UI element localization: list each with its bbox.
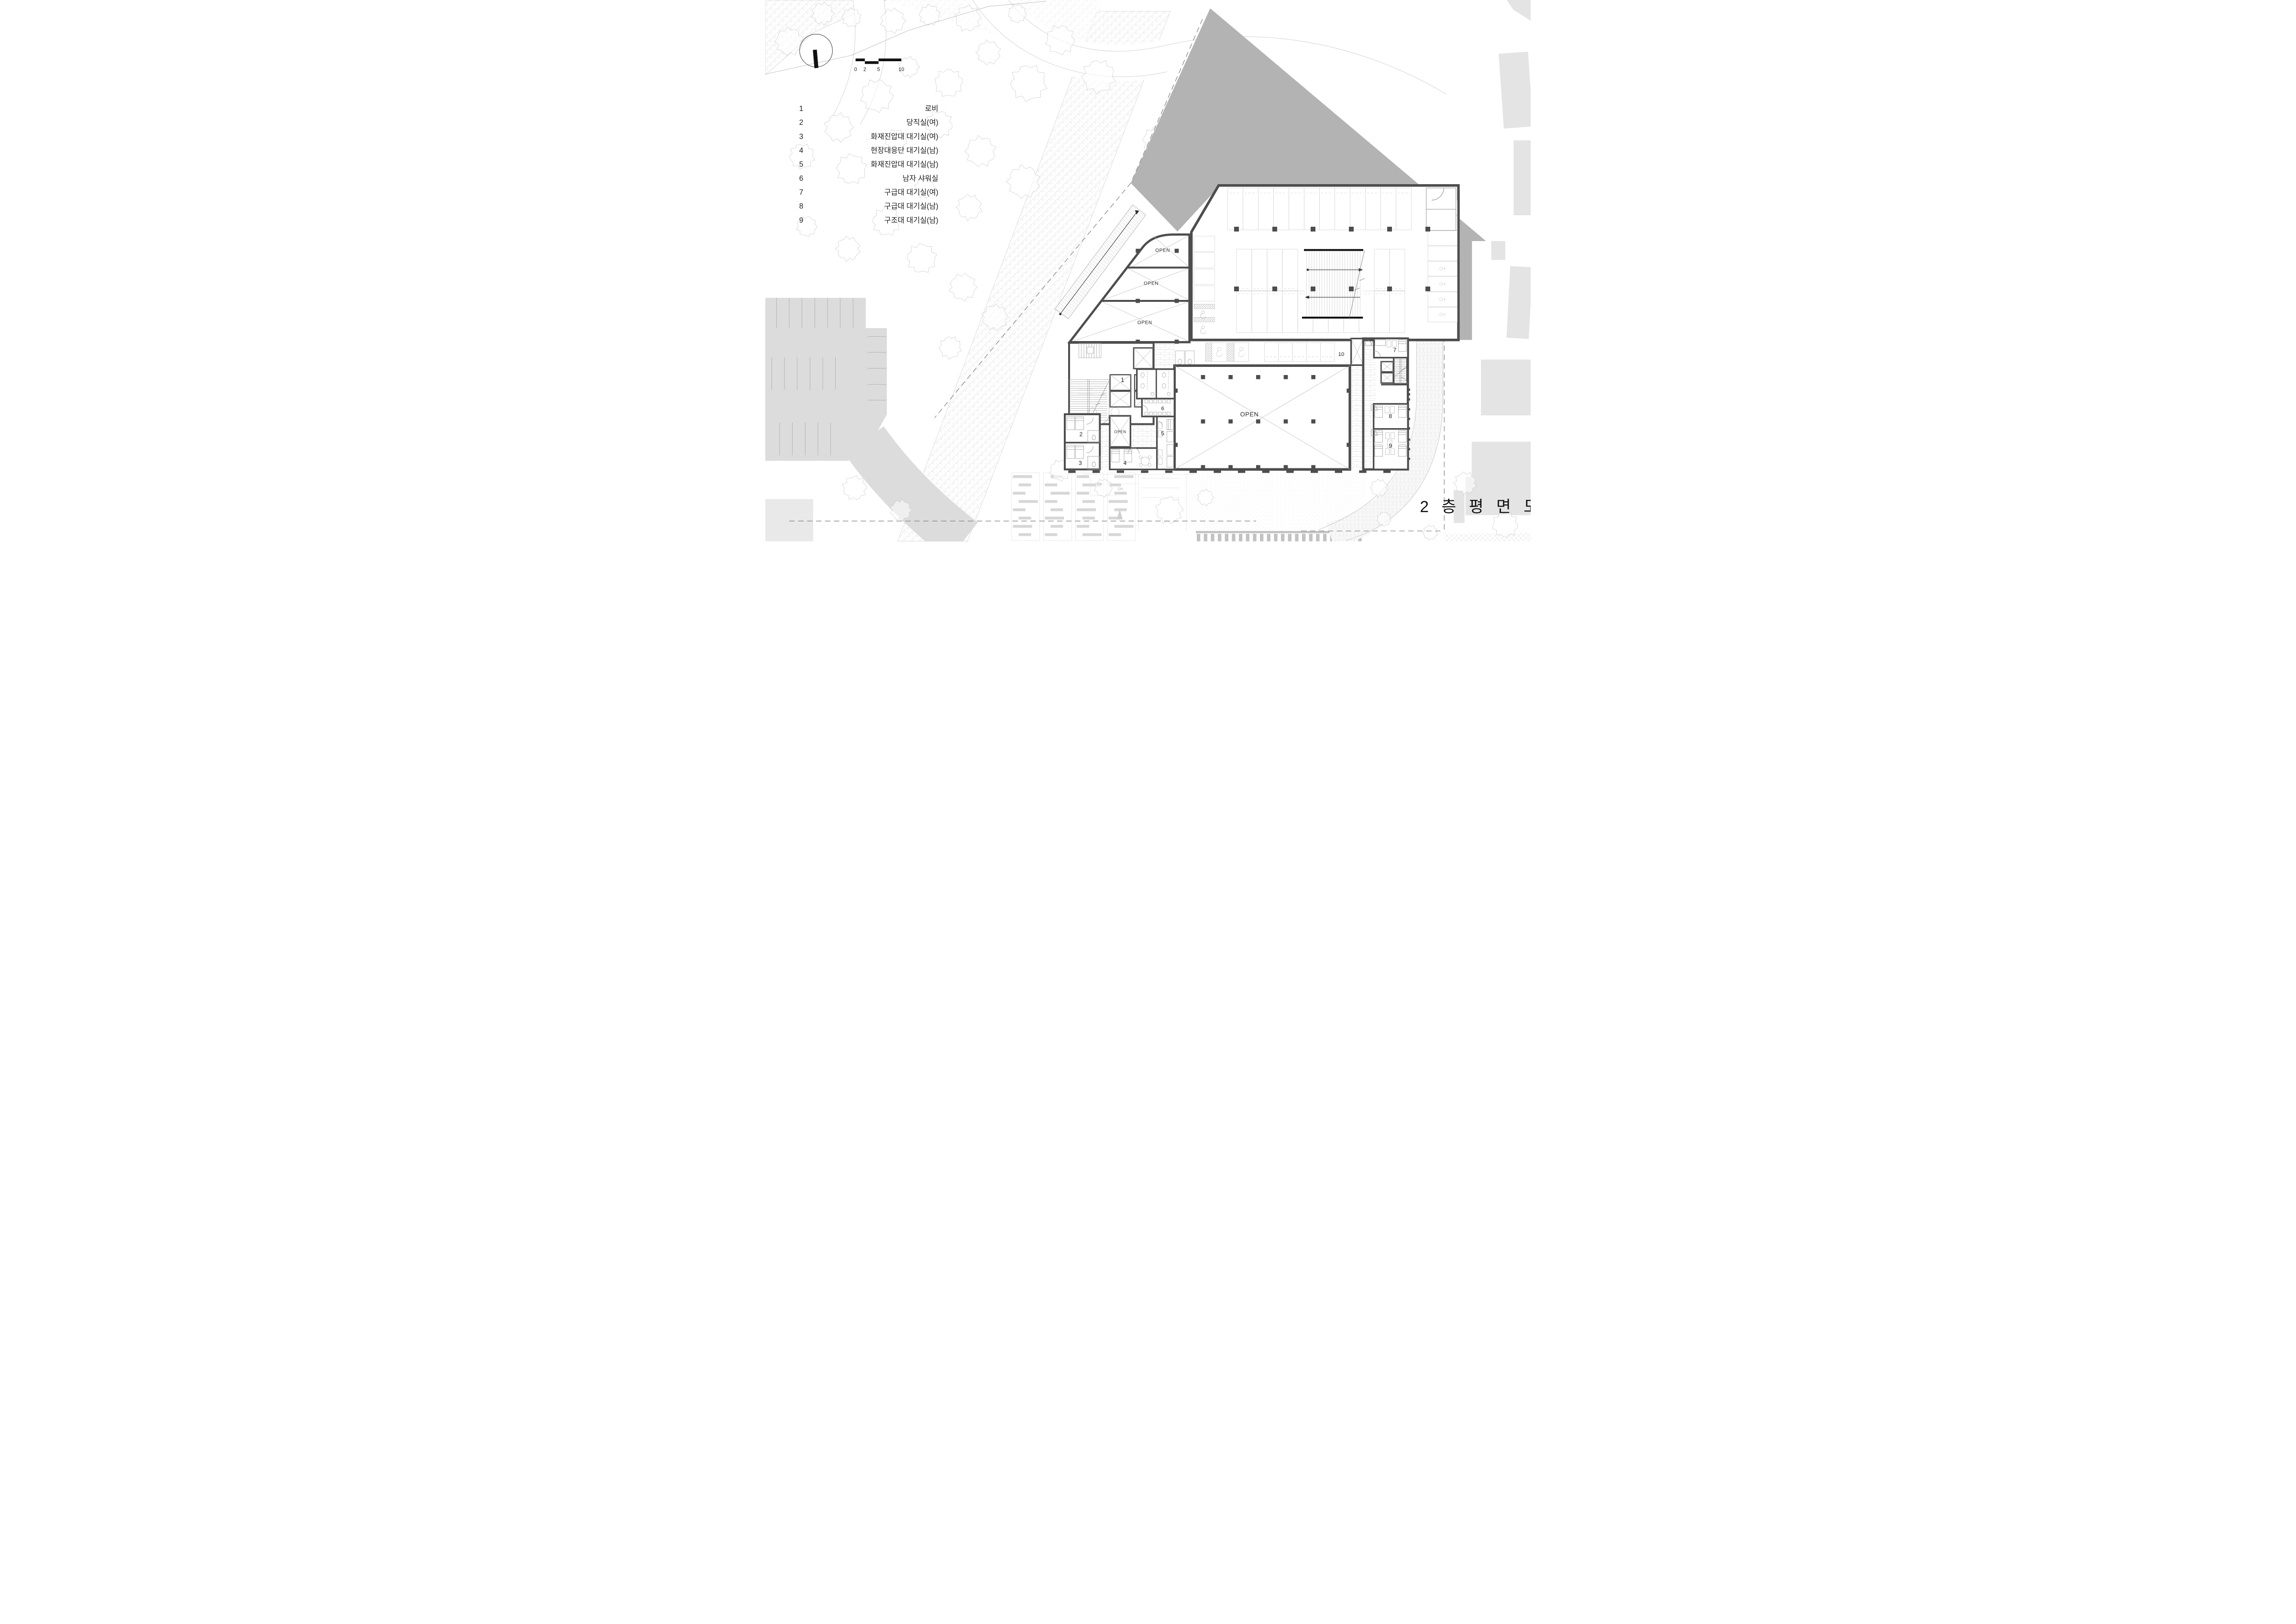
planting-band: [1045, 517, 1064, 519]
big-open-hall: [1173, 365, 1351, 469]
step-tooth: [1274, 534, 1277, 541]
room-number-label: 8: [1389, 413, 1392, 420]
footing-dash: [1141, 470, 1148, 473]
legend-number: 1: [799, 105, 804, 113]
down-stair-label: DN: [1097, 482, 1102, 486]
legend-number: 4: [799, 146, 804, 155]
open-void-label: OPEN: [1155, 248, 1170, 254]
room-number-label: 1: [1121, 376, 1124, 383]
tree-symbol: [949, 273, 977, 301]
room-number-label: 6: [1161, 406, 1164, 411]
planting-strip: [1107, 473, 1136, 541]
tree-symbol: [907, 243, 936, 273]
planting-band: [1013, 525, 1032, 528]
open-void-label: OPEN: [1114, 430, 1126, 434]
tree-symbol: [935, 69, 963, 97]
planting-band: [1045, 484, 1057, 486]
planting-band: [1050, 508, 1063, 511]
parking-lot-west: [765, 298, 887, 461]
parking-stall: [1321, 343, 1335, 362]
footprint-sw: [765, 499, 813, 541]
step-tooth: [1267, 534, 1270, 541]
planting-band: [1115, 508, 1127, 511]
room-number-label: 4: [1124, 460, 1127, 466]
planting-band: [1115, 525, 1134, 528]
step-tooth: [1281, 534, 1284, 541]
planting-band: [1082, 500, 1095, 503]
tree-symbol: [1423, 525, 1438, 541]
footing-dash: [1262, 470, 1269, 473]
planting-band: [1050, 525, 1063, 528]
open-void-label: OPEN: [1144, 281, 1159, 286]
planting-band: [1019, 533, 1031, 536]
floor-plan-page: 0 2 5 10 1로비2당직실(여)3화재진압대 대기실(여)4현장대응단 대…: [765, 0, 1531, 541]
step-tooth: [1316, 534, 1319, 541]
room-number-label: 3: [1079, 460, 1082, 466]
step-tooth: [1260, 534, 1263, 541]
legend-number: 2: [799, 119, 804, 127]
footing-dash: [1165, 470, 1172, 473]
footing-dash: [1093, 470, 1100, 473]
tree-symbol: [1010, 65, 1047, 101]
footing-dash: [1359, 470, 1366, 473]
planting-band: [1082, 517, 1095, 519]
footing-dash: [1117, 470, 1124, 473]
footing-dash: [1214, 470, 1221, 473]
tree-symbol: [842, 475, 867, 500]
planting-band: [1019, 500, 1038, 503]
parking-stall: [1264, 343, 1278, 362]
parking-stall: [1279, 343, 1292, 362]
room-number-label: 2: [1080, 431, 1083, 438]
legend-row: 9구조대 대기실(남): [799, 216, 938, 224]
planting-band: [1077, 475, 1089, 478]
legend-label: 화재진압대 대기실(여): [871, 133, 938, 141]
step-tooth: [1253, 534, 1256, 541]
tree-symbol: [956, 194, 982, 221]
step-tooth: [1309, 534, 1313, 541]
legend-number: 6: [799, 175, 804, 183]
footing-dash: [1238, 470, 1245, 473]
step-tooth: [1288, 534, 1291, 541]
step-tooth: [1302, 534, 1305, 541]
legend-label: 당직실(여): [906, 119, 938, 127]
planting-band: [1109, 533, 1121, 536]
step-tooth: [1225, 534, 1228, 541]
planting-strip: [1044, 473, 1072, 541]
planting-band: [1077, 508, 1096, 511]
planting-band: [1115, 475, 1134, 478]
scale-tick-10: 10: [898, 67, 904, 73]
legend-row: 2당직실(여): [799, 119, 938, 127]
room-4: [1110, 448, 1157, 470]
footing-dash: [1286, 470, 1293, 473]
planting-strip: [1012, 473, 1040, 541]
step-tooth: [1246, 534, 1249, 541]
planting-band: [1013, 475, 1032, 478]
room-number-label: 7: [1393, 347, 1397, 354]
mid-strip: [1175, 339, 1378, 369]
step-tooth: [1323, 534, 1326, 541]
tree-symbol: [976, 40, 1001, 65]
legend-label: 구급대 대기실(여): [884, 188, 938, 197]
road-west: [829, 0, 871, 223]
parking-stall: [1306, 343, 1320, 362]
step-tooth: [1218, 534, 1221, 541]
floor-plan-canvas: 0 2 5 10 1로비2당직실(여)3화재진압대 대기실(여)4현장대응단 대…: [765, 0, 1531, 541]
step-tooth: [1197, 534, 1200, 541]
scale-tick-2: 2: [863, 67, 866, 73]
planting-band: [1109, 500, 1128, 503]
wc-block: [1137, 369, 1175, 399]
planting-band: [1019, 484, 1031, 486]
step-tooth: [1204, 534, 1207, 541]
planting-band: [1050, 492, 1070, 495]
tree-symbol: [939, 337, 961, 359]
tree-symbol: [1155, 496, 1183, 524]
step-tooth: [1232, 534, 1235, 541]
room-2-3-block: [1065, 414, 1100, 469]
footing-dash: [1335, 470, 1342, 473]
hall-ne-room: [1426, 188, 1456, 231]
tree-symbol: [835, 236, 860, 262]
room-number-label: 5: [1161, 430, 1164, 437]
footing-dash: [1190, 470, 1197, 473]
footing-dash: [1383, 470, 1391, 473]
planting-band: [1013, 508, 1026, 511]
tree-symbol: [965, 135, 996, 166]
planting-band: [1082, 533, 1102, 536]
paving-diamond-se: [1445, 533, 1531, 541]
legend-number: 5: [799, 161, 804, 169]
footing-dash: [1311, 470, 1318, 473]
step-tooth: [1295, 534, 1298, 541]
planting-band: [1115, 492, 1127, 495]
drawing-title: 2 층 평 면 도: [1420, 498, 1531, 516]
room-number-label: 10: [1338, 352, 1345, 357]
step-tooth: [1211, 534, 1214, 541]
legend-label: 구조대 대기실(남): [884, 216, 938, 224]
planting-strips: [1012, 473, 1136, 541]
scale-tick-5: 5: [877, 67, 880, 73]
planting-band: [1045, 533, 1057, 536]
planting-band: [1013, 492, 1026, 495]
vehicle-ramp: [1302, 249, 1365, 319]
open-void-label: OPEN: [1240, 411, 1259, 418]
footing-dash: [1068, 470, 1075, 473]
legend-label: 화재진압대 대기실(남): [871, 161, 938, 169]
legend-label: 남자 샤워실: [903, 175, 938, 183]
legend-number: 7: [799, 188, 804, 197]
legend-label: 현장대응단 대기실(남): [871, 146, 938, 155]
legend-number: 9: [799, 216, 804, 224]
parking-stall: [1292, 343, 1306, 362]
down-stair-label: DN: [1118, 487, 1123, 491]
room-5: [1157, 417, 1175, 470]
legend-number: 8: [799, 202, 804, 210]
legend-number: 3: [799, 133, 804, 141]
planting-band: [1077, 525, 1089, 528]
legend-label: 구급대 대기실(남): [884, 202, 938, 210]
scale-tick-0: 0: [854, 67, 857, 73]
legend-label: 로비: [925, 105, 938, 113]
room-6: [1142, 398, 1174, 416]
planting-band: [1045, 500, 1057, 503]
planting-band: [1019, 517, 1031, 519]
open-void-label: OPEN: [1137, 320, 1152, 325]
planting-band: [1077, 492, 1089, 495]
room-number-label: 9: [1389, 442, 1392, 449]
step-tooth: [1239, 534, 1242, 541]
